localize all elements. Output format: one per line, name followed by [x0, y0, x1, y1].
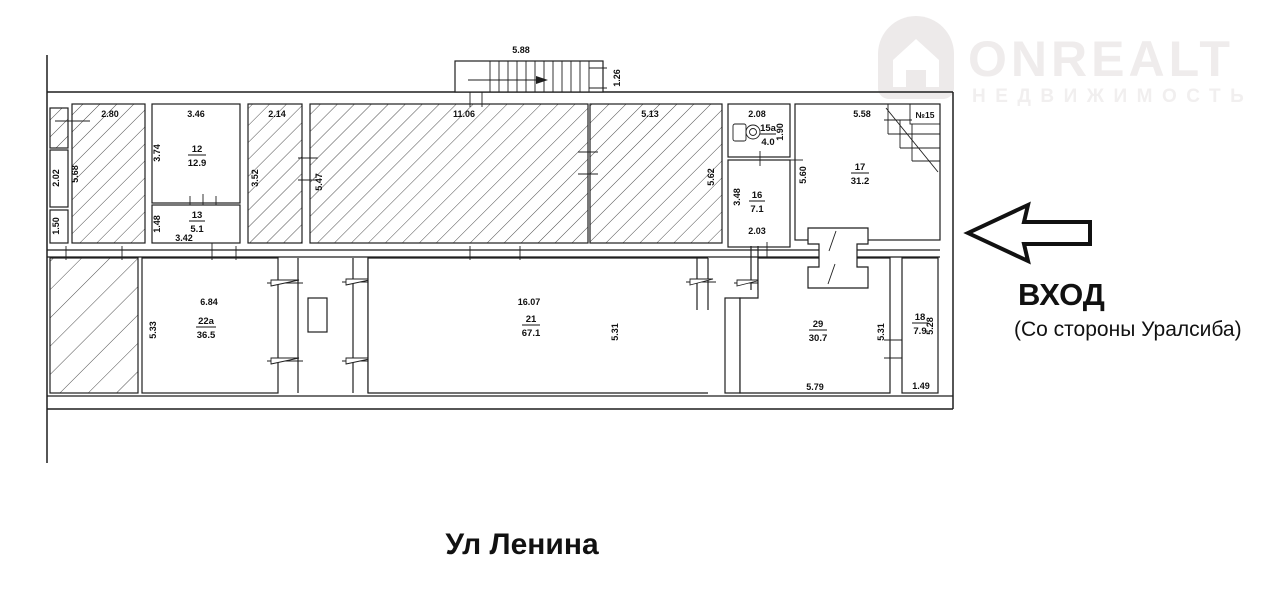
entrance-annotation: ВХОД (Со стороны Уралсиба) — [968, 205, 1242, 341]
dim-stair-width: 5.88 — [512, 45, 530, 55]
dim-r13-height: 1.48 — [152, 215, 162, 233]
dim-ha-width: 2.80 — [101, 109, 119, 119]
room-12: 3.46 3.74 12 12.9 — [152, 104, 240, 216]
interior-walls-and-doors — [267, 258, 377, 393]
dim-hb-height: 3.52 — [250, 169, 260, 187]
top-staircase: 5.88 1.26 — [455, 45, 622, 107]
floorplan-page: ONREALT НЕДВИЖИМОСТЬ 5.88 1.26 — [0, 0, 1280, 591]
hatched-area-d: 5.13 5.62 — [578, 104, 722, 243]
hatched-area-bottom-left — [50, 258, 138, 393]
dim-hc-height: 5.47 — [314, 173, 324, 191]
room-21-area: 67.1 — [522, 328, 541, 339]
room-16-area: 7.1 — [750, 204, 764, 215]
room-17-unit-label: №15 — [916, 110, 935, 120]
dim-r17-width: 5.58 — [853, 109, 871, 119]
room-18: 18 7.9 5.28 1.49 — [902, 258, 938, 393]
entrance-subtitle: (Со стороны Уралсиба) — [1014, 318, 1242, 341]
dim-r16-height: 3.48 — [732, 188, 742, 206]
dim-stair-depth: 1.26 — [612, 69, 622, 87]
dim-r15a-height: 1.90 — [775, 123, 785, 141]
dim-r12-width: 3.46 — [187, 109, 205, 119]
hatched-area-b: 2.14 3.52 — [248, 104, 318, 243]
dim-r16-bottom: 2.03 — [748, 226, 766, 236]
room-17: №15 5.58 5.60 17 31.2 — [787, 104, 940, 240]
dim-r22a-width: 6.84 — [200, 297, 218, 307]
dim-r18-height: 5.28 — [925, 317, 935, 335]
room-13: 1.48 13 5.1 3.42 — [152, 205, 240, 243]
room-18-number: 18 — [915, 312, 926, 323]
column — [308, 298, 327, 332]
dim-r29-height: 5.31 — [876, 323, 886, 341]
wall-pier — [725, 298, 740, 393]
dim-ha-height: 5.68 — [70, 165, 80, 183]
dim-hd-height: 5.62 — [706, 168, 716, 186]
dim-r18-bottom: 1.49 — [912, 381, 930, 391]
hatched-area-a: 2.80 5.68 — [70, 104, 145, 243]
dim-r21-height: 5.31 — [610, 323, 620, 341]
room-22a-area: 36.5 — [197, 330, 216, 341]
dim-strip-upper: 2.02 — [51, 169, 61, 187]
dim-r29-bottom: 5.79 — [806, 382, 824, 392]
dim-hb-width: 2.14 — [268, 109, 286, 119]
entrance-arrow-icon — [968, 205, 1090, 261]
dim-strip-lower: 1.50 — [51, 217, 61, 235]
dim-hd-width: 5.13 — [641, 109, 659, 119]
dim-hc-width: 11.06 — [453, 109, 475, 119]
room-15a: 2.08 15а 4.0 1.90 — [728, 104, 790, 157]
room-13-number: 13 — [192, 210, 203, 221]
dim-r21-width: 16.07 — [518, 297, 541, 307]
room-22a: 6.84 5.33 22а 36.5 — [142, 258, 278, 393]
room-16-number: 16 — [752, 190, 763, 201]
dim-r13-width: 3.42 — [175, 233, 193, 243]
dim-r12-height: 3.74 — [152, 144, 162, 162]
room-21-number: 21 — [526, 314, 537, 325]
dim-r22a-height: 5.33 — [148, 321, 158, 339]
room-22a-number: 22а — [198, 316, 215, 327]
entrance-title: ВХОД — [1018, 277, 1105, 312]
room-15a-area: 4.0 — [761, 137, 774, 148]
watermark-subtitle: НЕДВИЖИМОСТЬ — [972, 86, 1253, 107]
room-29-number: 29 — [813, 319, 824, 330]
room-17-number: 17 — [855, 162, 866, 173]
floorplan-drawing: ONREALT НЕДВИЖИМОСТЬ 5.88 1.26 — [0, 0, 1280, 591]
room-12-number: 12 — [192, 144, 203, 155]
dim-r15a-width: 2.08 — [748, 109, 766, 119]
watermark: ONREALT НЕДВИЖИМОСТЬ — [878, 16, 1253, 107]
hatched-area-c: 11.06 5.47 — [310, 104, 588, 243]
watermark-brand: ONREALT — [968, 31, 1234, 87]
dim-r17-height: 5.60 — [798, 166, 808, 184]
room-12-area: 12.9 — [188, 158, 207, 169]
street-label: Ул Ленина — [445, 528, 599, 561]
room-17-area: 31.2 — [851, 176, 870, 187]
room-21: 16.07 21 67.1 5.31 — [368, 258, 708, 393]
room-29-area: 30.7 — [809, 333, 828, 344]
